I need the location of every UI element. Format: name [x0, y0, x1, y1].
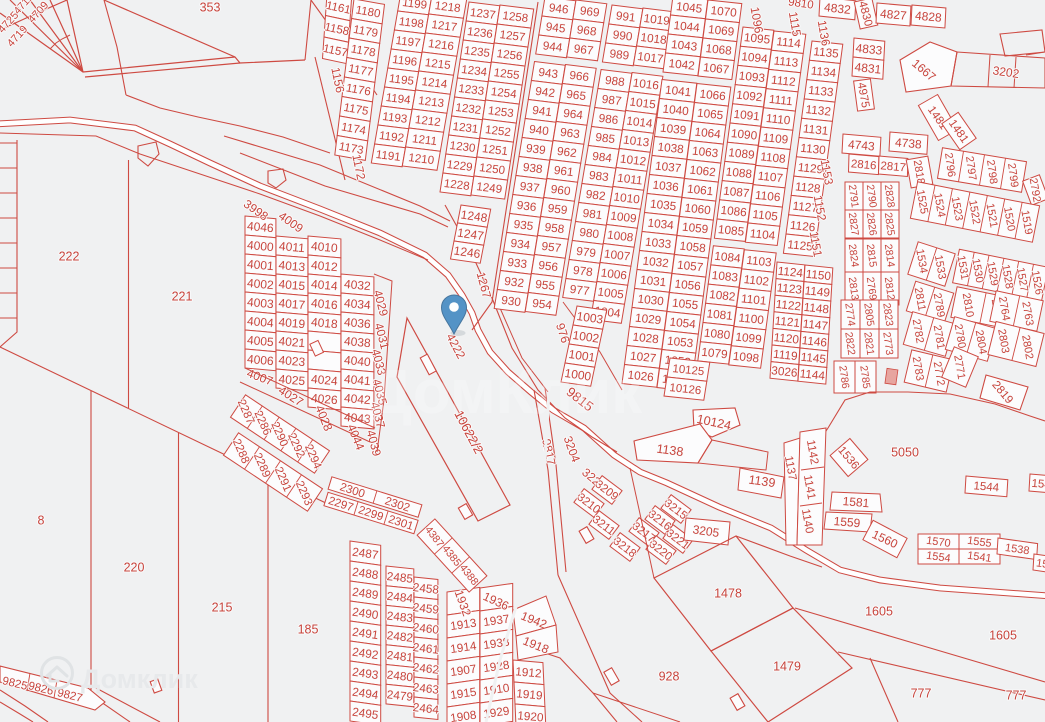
svg-text:4015: 4015 [278, 277, 306, 293]
svg-text:1098: 1098 [732, 349, 760, 366]
svg-text:940: 940 [528, 122, 550, 138]
svg-text:1033: 1033 [644, 235, 672, 252]
svg-text:1908: 1908 [449, 708, 477, 722]
svg-text:991: 991 [615, 8, 636, 24]
svg-text:1479: 1479 [773, 659, 801, 673]
svg-text:1031: 1031 [639, 273, 667, 290]
svg-text:1093: 1093 [738, 68, 766, 85]
svg-text:1058: 1058 [679, 239, 707, 256]
svg-text:221: 221 [172, 289, 193, 303]
svg-text:1605: 1605 [865, 604, 893, 618]
svg-text:955: 955 [535, 277, 557, 293]
svg-text:954: 954 [531, 296, 553, 312]
svg-text:5050: 5050 [891, 445, 919, 459]
svg-text:1069: 1069 [707, 22, 735, 39]
svg-text:4014: 4014 [310, 277, 338, 293]
svg-text:982: 982 [585, 187, 606, 203]
svg-text:2462: 2462 [412, 660, 440, 677]
svg-text:4024: 4024 [310, 372, 338, 388]
svg-text:2480: 2480 [386, 668, 414, 685]
svg-text:963: 963 [559, 125, 581, 141]
svg-text:3026: 3026 [771, 363, 799, 380]
svg-text:1108: 1108 [760, 149, 787, 166]
svg-text:1146: 1146 [801, 333, 828, 350]
svg-text:1092: 1092 [736, 88, 764, 105]
svg-text:1545: 1545 [1031, 478, 1045, 492]
svg-text:987: 987 [601, 92, 622, 108]
svg-text:1035: 1035 [649, 197, 677, 214]
svg-text:777: 777 [1006, 688, 1027, 702]
svg-text:1045: 1045 [675, 0, 703, 16]
svg-text:983: 983 [588, 168, 610, 184]
svg-text:Домклик: Домклик [81, 664, 198, 694]
svg-text:1912: 1912 [515, 664, 542, 680]
svg-text:2460: 2460 [412, 620, 440, 637]
svg-text:1133: 1133 [808, 83, 835, 100]
svg-text:1559: 1559 [833, 514, 861, 530]
svg-text:957: 957 [541, 239, 562, 255]
svg-text:960: 960 [550, 182, 572, 198]
svg-text:961: 961 [553, 163, 574, 179]
svg-text:944: 944 [542, 38, 564, 54]
svg-text:1919: 1919 [516, 686, 543, 702]
svg-text:1043: 1043 [670, 37, 698, 54]
svg-text:4827: 4827 [879, 7, 907, 23]
svg-text:1034: 1034 [647, 216, 675, 233]
svg-text:1065: 1065 [696, 106, 724, 123]
svg-text:1086: 1086 [720, 203, 748, 220]
svg-text:4011: 4011 [278, 239, 305, 255]
svg-text:1055: 1055 [671, 296, 699, 313]
svg-text:1605: 1605 [989, 628, 1017, 642]
svg-text:1120: 1120 [773, 330, 800, 347]
svg-text:1032: 1032 [642, 254, 670, 271]
svg-text:1107: 1107 [757, 169, 784, 186]
svg-text:1099: 1099 [735, 330, 763, 347]
svg-text:4021: 4021 [278, 334, 306, 350]
svg-text:1084: 1084 [714, 249, 742, 266]
svg-text:4005: 4005 [246, 333, 274, 349]
svg-text:1082: 1082 [709, 287, 737, 304]
svg-text:1123: 1123 [776, 280, 803, 297]
svg-text:4012: 4012 [310, 258, 338, 274]
svg-text:1063: 1063 [691, 144, 719, 161]
svg-text:934: 934 [510, 236, 532, 252]
svg-text:965: 965 [566, 87, 588, 103]
svg-text:1145: 1145 [800, 350, 827, 367]
svg-text:966: 966 [569, 68, 591, 84]
svg-text:2484: 2484 [386, 589, 414, 606]
svg-text:4019: 4019 [278, 315, 306, 331]
svg-text:969: 969 [579, 3, 600, 19]
svg-text:2482: 2482 [386, 628, 414, 645]
svg-text:1039: 1039 [659, 121, 687, 138]
svg-text:1478: 1478 [714, 586, 742, 600]
svg-text:4004: 4004 [246, 314, 274, 330]
svg-text:1104: 1104 [749, 226, 776, 243]
svg-text:935: 935 [513, 217, 535, 233]
svg-text:1067: 1067 [702, 60, 730, 77]
svg-text:1028: 1028 [632, 330, 660, 347]
svg-text:928: 928 [659, 669, 680, 683]
svg-text:937: 937 [519, 179, 540, 195]
svg-text:2464: 2464 [412, 700, 440, 717]
svg-text:1121: 1121 [774, 313, 801, 330]
svg-text:4016: 4016 [310, 296, 338, 312]
svg-text:941: 941 [531, 103, 552, 119]
svg-text:1148: 1148 [803, 300, 830, 317]
svg-text:4002: 4002 [246, 276, 274, 292]
svg-text:2459: 2459 [412, 600, 440, 617]
svg-text:1920: 1920 [517, 708, 545, 722]
svg-text:1040: 1040 [662, 102, 690, 119]
svg-text:4831: 4831 [854, 60, 882, 77]
svg-text:985: 985 [595, 130, 617, 146]
svg-text:4013: 4013 [278, 258, 306, 274]
svg-text:979: 979 [575, 244, 596, 260]
svg-text:2816: 2816 [850, 158, 877, 172]
svg-text:1144: 1144 [799, 366, 826, 383]
svg-text:1581: 1581 [842, 494, 870, 510]
svg-text:4000: 4000 [246, 238, 274, 254]
svg-text:1083: 1083 [711, 268, 739, 285]
svg-text:1105: 1105 [752, 207, 779, 224]
svg-text:1070: 1070 [710, 3, 738, 20]
svg-text:981: 981 [582, 206, 603, 222]
svg-text:933: 933 [507, 255, 529, 271]
svg-text:1131: 1131 [802, 121, 829, 138]
svg-text:930: 930 [500, 293, 522, 309]
svg-text:1091: 1091 [733, 107, 761, 124]
svg-text:4023: 4023 [278, 353, 306, 369]
svg-text:1100: 1100 [738, 310, 765, 327]
svg-text:1106: 1106 [754, 188, 781, 205]
svg-text:939: 939 [525, 141, 546, 157]
svg-text:1061: 1061 [686, 182, 714, 199]
svg-text:2458: 2458 [412, 580, 440, 597]
svg-text:1122: 1122 [775, 297, 802, 314]
svg-text:1037: 1037 [654, 159, 682, 176]
svg-text:1085: 1085 [717, 222, 745, 239]
svg-text:2461: 2461 [412, 640, 440, 657]
svg-text:943: 943 [538, 65, 560, 81]
svg-text:1054: 1054 [669, 315, 697, 332]
svg-text:4010: 4010 [310, 239, 338, 255]
svg-text:936: 936 [516, 198, 538, 214]
svg-text:2481: 2481 [386, 648, 414, 665]
svg-text:962: 962 [556, 144, 577, 160]
svg-text:8: 8 [38, 513, 45, 527]
svg-text:4034: 4034 [343, 296, 371, 312]
svg-text:938: 938 [522, 160, 544, 176]
svg-text:2479: 2479 [386, 687, 414, 704]
svg-text:1081: 1081 [706, 306, 734, 323]
svg-text:4832: 4832 [823, 0, 851, 17]
svg-text:988: 988 [604, 73, 626, 89]
svg-text:4017: 4017 [278, 296, 306, 312]
svg-text:1059: 1059 [681, 220, 709, 237]
svg-text:1068: 1068 [705, 41, 733, 58]
svg-text:1114: 1114 [776, 34, 802, 51]
svg-text:1128: 1128 [795, 179, 822, 196]
svg-text:1042: 1042 [668, 56, 696, 73]
svg-text:967: 967 [573, 41, 594, 57]
svg-text:986: 986 [598, 111, 620, 127]
svg-text:4018: 4018 [310, 315, 338, 331]
svg-text:1044: 1044 [673, 18, 701, 35]
svg-text:980: 980 [579, 225, 601, 241]
svg-text:959: 959 [547, 201, 568, 217]
svg-text:956: 956 [538, 258, 560, 274]
svg-text:1132: 1132 [805, 102, 832, 119]
svg-text:1089: 1089 [728, 145, 756, 162]
svg-text:1119: 1119 [772, 347, 798, 363]
svg-text:1124: 1124 [777, 264, 804, 281]
svg-text:1038: 1038 [657, 140, 685, 157]
svg-text:4743: 4743 [847, 137, 875, 153]
svg-text:968: 968 [576, 22, 598, 38]
svg-text:1062: 1062 [689, 163, 717, 180]
svg-text:1112: 1112 [770, 73, 796, 89]
svg-text:946: 946 [548, 0, 570, 16]
svg-text:4003: 4003 [246, 295, 274, 311]
svg-text:353: 353 [200, 0, 221, 14]
svg-text:2483: 2483 [386, 608, 414, 625]
svg-text:1088: 1088 [725, 164, 753, 181]
svg-text:945: 945 [545, 19, 567, 35]
svg-text:4036: 4036 [343, 315, 371, 331]
svg-text:1066: 1066 [699, 87, 727, 104]
svg-text:1147: 1147 [802, 316, 829, 333]
svg-text:1029: 1029 [634, 311, 662, 328]
svg-text:1090: 1090 [730, 126, 758, 143]
svg-text:1057: 1057 [676, 258, 704, 275]
svg-text:1064: 1064 [694, 125, 722, 142]
svg-text:1079: 1079 [701, 345, 729, 362]
svg-text:1110: 1110 [765, 111, 791, 128]
svg-text:964: 964 [562, 106, 584, 122]
svg-text:4038: 4038 [343, 334, 371, 350]
svg-text:958: 958 [544, 220, 566, 236]
svg-text:1134: 1134 [810, 63, 837, 80]
svg-text:1135: 1135 [813, 44, 840, 61]
svg-text:1103: 1103 [746, 253, 773, 270]
svg-text:1030: 1030 [637, 292, 665, 309]
svg-text:1102: 1102 [743, 272, 770, 289]
svg-text:2817: 2817 [880, 160, 907, 174]
svg-text:989: 989 [609, 46, 630, 62]
svg-text:777: 777 [911, 686, 932, 700]
svg-text:984: 984 [591, 149, 613, 165]
svg-text:1041: 1041 [664, 83, 692, 100]
svg-text:978: 978 [572, 263, 594, 279]
svg-text:1036: 1036 [652, 178, 680, 195]
svg-text:222: 222 [59, 249, 80, 263]
svg-text:185: 185 [298, 622, 319, 636]
svg-text:1149: 1149 [804, 283, 831, 300]
svg-text:1544: 1544 [973, 480, 1000, 494]
svg-text:932: 932 [504, 274, 525, 290]
svg-text:1087: 1087 [723, 184, 751, 201]
svg-text:2485: 2485 [386, 569, 414, 586]
svg-text:977: 977 [569, 282, 590, 298]
svg-text:4833: 4833 [855, 41, 883, 58]
svg-text:942: 942 [535, 84, 556, 100]
svg-text:215: 215 [212, 600, 233, 614]
svg-text:1130: 1130 [800, 141, 827, 158]
svg-text:1111: 1111 [768, 92, 793, 108]
svg-text:4001: 4001 [246, 257, 274, 273]
svg-text:1101: 1101 [740, 291, 767, 308]
svg-text:ДомКлик: ДомКлик [368, 358, 643, 427]
svg-text:2463: 2463 [412, 680, 440, 697]
svg-text:1094: 1094 [741, 49, 769, 66]
svg-text:990: 990 [612, 27, 634, 43]
svg-text:1150: 1150 [805, 267, 832, 284]
svg-text:4032: 4032 [343, 277, 371, 293]
svg-text:1109: 1109 [762, 130, 789, 147]
svg-text:4828: 4828 [914, 9, 942, 25]
svg-text:220: 220 [124, 560, 145, 574]
svg-text:1056: 1056 [674, 277, 702, 294]
svg-text:1060: 1060 [684, 201, 712, 218]
svg-text:4738: 4738 [894, 135, 922, 151]
svg-text:1113: 1113 [773, 53, 799, 70]
svg-text:1053: 1053 [666, 334, 694, 351]
svg-text:1080: 1080 [703, 325, 731, 342]
